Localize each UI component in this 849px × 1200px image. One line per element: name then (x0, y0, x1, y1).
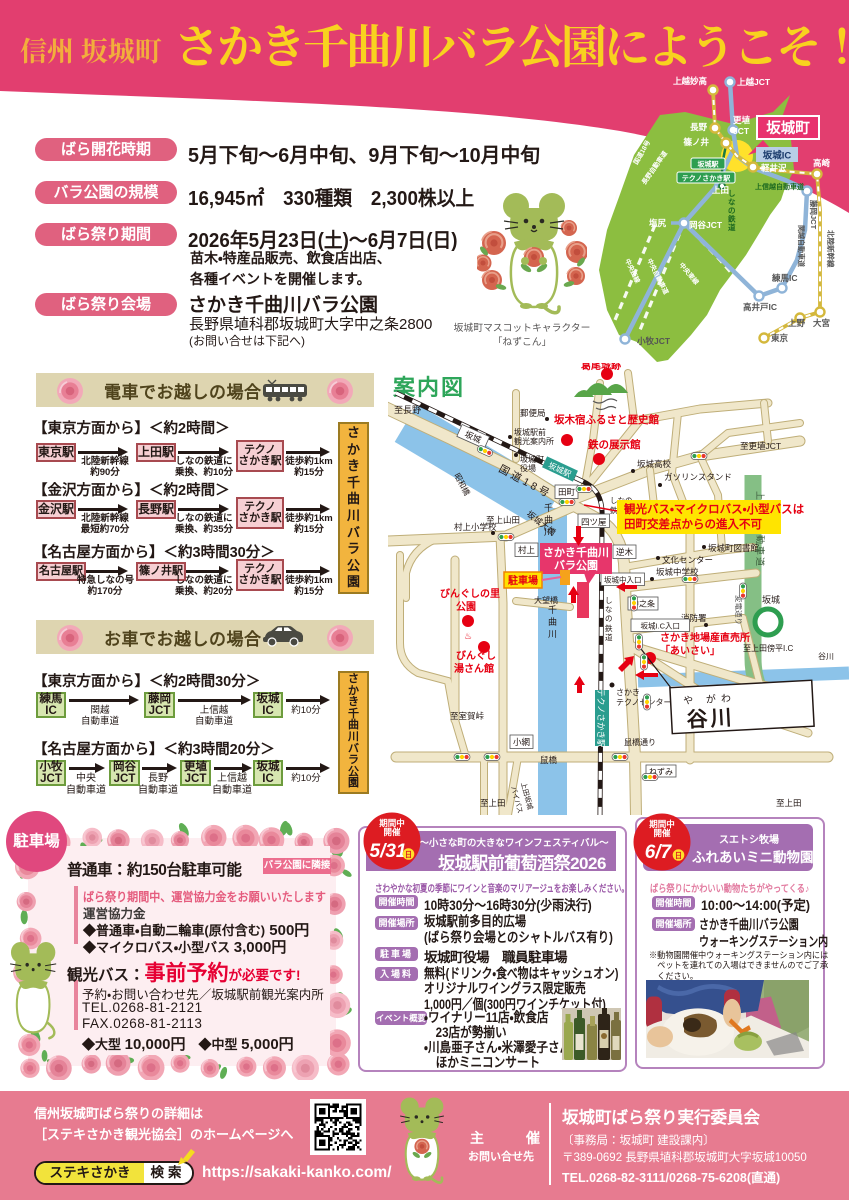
svg-text:大宮: 大宮 (813, 318, 831, 328)
svg-text:ガソリンスタンド: ガソリンスタンド (664, 472, 732, 482)
svg-text:坂城IC: 坂城IC (763, 150, 792, 162)
svg-text:上野: 上野 (788, 318, 806, 328)
svg-text:川: 川 (544, 527, 553, 537)
svg-text:鼠橋: 鼠橋 (540, 755, 558, 765)
svg-text:藤岡JCT: 藤岡JCT (809, 199, 819, 230)
svg-text:田町: 田町 (558, 487, 576, 497)
svg-text:上信越自動車道: 上信越自動車道 (755, 182, 804, 191)
svg-text:日: 日 (675, 851, 682, 860)
svg-text:湯さん館: 湯さん館 (454, 662, 494, 675)
svg-text:鉄: 鉄 (605, 623, 613, 633)
svg-text:至更埴JCT: 至更埴JCT (740, 441, 781, 451)
svg-text:上越JCT: 上越JCT (737, 77, 771, 87)
svg-text:至上田: 至上田 (480, 798, 506, 808)
svg-text:北陸新幹線: 北陸新幹線 (826, 230, 836, 268)
svg-text:鉄: 鉄 (727, 214, 736, 224)
svg-text:変電通り: 変電通り (734, 595, 744, 625)
svg-text:鼠橋通り: 鼠橋通り (624, 737, 656, 747)
svg-text:篠ノ井: 篠ノ井 (682, 137, 709, 147)
svg-text:高崎: 高崎 (813, 158, 831, 168)
svg-text:♨: ♨ (464, 631, 472, 641)
svg-text:曲: 曲 (548, 617, 557, 627)
svg-text:道: 道 (728, 222, 736, 232)
svg-text:上田: 上田 (712, 185, 729, 195)
svg-text:日: 日 (405, 850, 412, 859)
svg-text:軽井沢: 軽井沢 (761, 163, 787, 173)
svg-text:葛尾城跡: 葛尾城跡 (580, 363, 621, 372)
svg-text:練馬IC: 練馬IC (771, 273, 798, 283)
svg-text:テクノさかき駅: テクノさかき駅 (682, 174, 732, 183)
svg-text:坂城町: 坂城町 (766, 119, 810, 137)
svg-text:びんぐし: びんぐし (456, 649, 496, 662)
svg-text:川: 川 (548, 629, 557, 639)
svg-text:至上田: 至上田 (776, 798, 802, 808)
svg-text:坂城I.C入口: 坂城I.C入口 (640, 621, 680, 631)
svg-text:至室賀峠: 至室賀峠 (450, 711, 485, 721)
svg-text:塩尻: 塩尻 (649, 218, 667, 228)
svg-text:びんぐしの里: びんぐしの里 (440, 587, 500, 600)
svg-text:し: し (605, 596, 613, 605)
svg-text:坂城町図書館: 坂城町図書館 (708, 543, 760, 553)
svg-text:千: 千 (548, 605, 557, 615)
svg-text:村上小学校: 村上小学校 (454, 522, 497, 532)
svg-text:公園: 公園 (456, 601, 476, 613)
svg-text:関越自動車道: 関越自動車道 (797, 225, 806, 267)
svg-text:テクノさかき駅: テクノさかき駅 (596, 689, 606, 748)
svg-text:坂城高校: 坂城高校 (637, 459, 672, 469)
svg-text:高井戸IC: 高井戸IC (743, 302, 777, 312)
svg-text:逆木: 逆木 (616, 547, 634, 557)
svg-text:小牧JCT: 小牧JCT (636, 336, 671, 346)
svg-text:谷川: 谷川 (686, 706, 735, 731)
svg-text:坂木宿ふるさと歴史館: 坂木宿ふるさと歴史館 (554, 413, 659, 426)
svg-text:坂城駅前: 坂城駅前 (514, 427, 546, 437)
svg-text:文化センター: 文化センター (662, 555, 713, 565)
svg-text:さかき千曲川: さかき千曲川 (543, 545, 609, 559)
svg-text:坂城中入口: 坂城中入口 (604, 575, 642, 585)
svg-text:5/31: 5/31 (370, 841, 407, 862)
svg-text:大望橋: 大望橋 (534, 595, 558, 605)
svg-text:JCT: JCT (733, 126, 750, 136)
svg-text:千: 千 (544, 503, 553, 513)
svg-text:坂城: 坂城 (762, 594, 780, 605)
svg-text:曲: 曲 (544, 515, 553, 525)
svg-text:観光案内所: 観光案内所 (514, 436, 554, 446)
svg-text:岡谷JCT: 岡谷JCT (689, 220, 723, 230)
svg-text:長野: 長野 (690, 122, 708, 132)
svg-text:6/7: 6/7 (645, 842, 673, 863)
svg-text:谷川: 谷川 (818, 652, 834, 661)
svg-text:さかき地場産直売所: さかき地場産直売所 (660, 631, 750, 644)
svg-text:郵便局: 郵便局 (520, 408, 546, 418)
svg-text:村上: 村上 (518, 545, 536, 555)
svg-text:鉄の展示館: 鉄の展示館 (587, 438, 641, 451)
svg-text:開催: 開催 (383, 827, 401, 837)
svg-text:至上田傍平I.C: 至上田傍平I.C (743, 643, 793, 653)
svg-text:観光バス・マイクロバス・小型バスは: 観光バス・マイクロバス・小型バスは (624, 502, 805, 516)
svg-text:田町交差点からの進入不可: 田町交差点からの進入不可 (624, 517, 762, 531)
svg-text:小網: 小網 (513, 737, 530, 747)
svg-text:さかき: さかき (616, 688, 640, 697)
svg-text:至長野: 至長野 (394, 405, 421, 415)
svg-text:な: な (605, 605, 613, 614)
svg-text:更埴: 更埴 (733, 115, 751, 125)
svg-text:役場: 役場 (520, 463, 536, 473)
svg-text:四ツ屋: 四ツ屋 (581, 517, 607, 527)
svg-text:上越妙高: 上越妙高 (673, 76, 708, 86)
svg-text:道: 道 (605, 632, 613, 642)
svg-text:駐車場: 駐車場 (507, 574, 538, 587)
svg-text:坂城駅: 坂城駅 (698, 160, 720, 169)
svg-text:「あいさい」: 「あいさい」 (660, 644, 720, 657)
svg-text:の: の (605, 614, 613, 623)
svg-text:東京: 東京 (771, 333, 789, 343)
svg-text:開催: 開催 (653, 828, 671, 838)
svg-text:坂城町: 坂城町 (520, 454, 544, 464)
